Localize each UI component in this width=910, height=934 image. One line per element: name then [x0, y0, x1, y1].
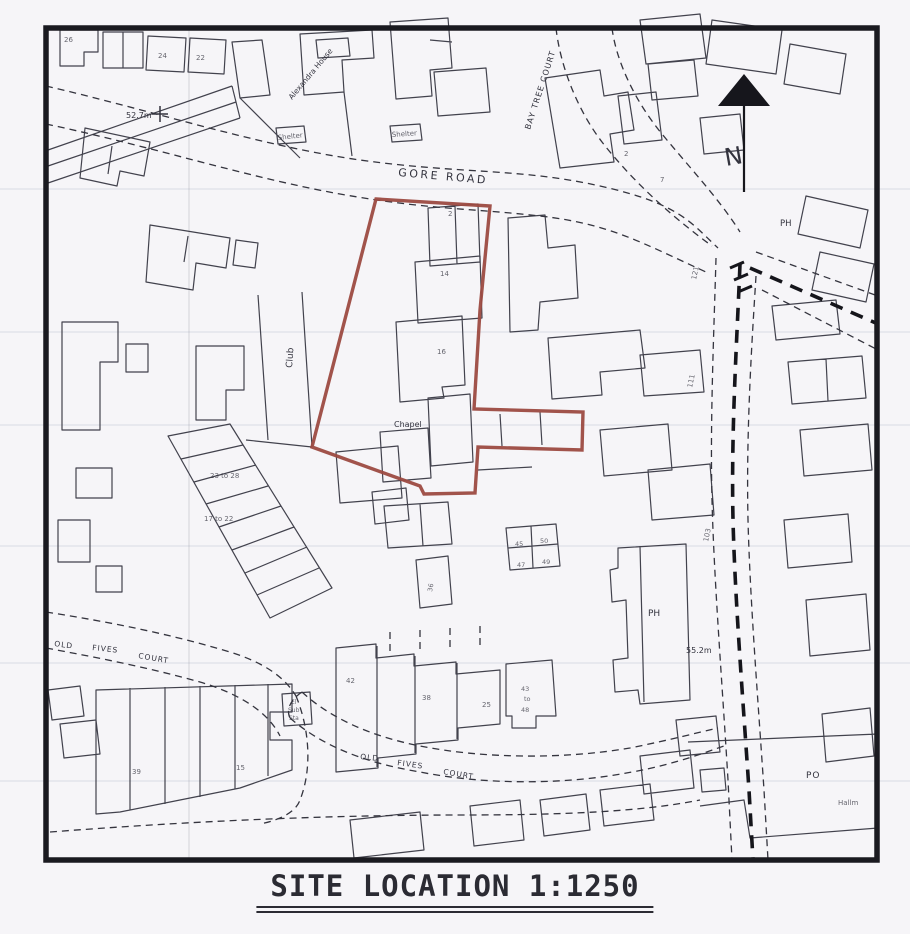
label-48: 48	[521, 706, 529, 714]
label-number-39: 39	[132, 768, 141, 776]
label-number-42: 42	[346, 677, 355, 685]
label-gore-road: GORE ROAD	[398, 166, 489, 187]
building-outline	[48, 684, 312, 814]
building-outline	[508, 215, 714, 704]
map-frame	[46, 28, 877, 860]
label-substation-sta: Sta	[289, 715, 299, 722]
label-po: PO	[806, 771, 821, 781]
label-number-36: 36	[426, 583, 435, 593]
label-benchmark-52: 52.7m	[126, 111, 152, 120]
label-oldfives-s-court: COURT	[443, 767, 475, 781]
building-outline	[58, 128, 312, 592]
label-shelter-east: Shelter	[392, 129, 418, 139]
label-benchmark-55: 55.2m	[686, 646, 712, 655]
label-number-111: 111	[686, 374, 697, 389]
label-oldfives-s-old: OLD	[360, 752, 380, 763]
label-garage-50: 50	[540, 537, 548, 545]
label-number-14: 14	[440, 270, 449, 278]
label-number-38: 38	[422, 694, 431, 702]
building-outline	[545, 14, 874, 302]
label-number-2-site: 2	[448, 210, 452, 218]
label-substation-el: El	[291, 699, 297, 706]
label-range-23-28: 23 to 28	[210, 472, 239, 480]
building-outline	[48, 18, 490, 183]
label-number-121: 121	[690, 266, 701, 281]
north-arrow-icon: N	[718, 74, 770, 192]
label-number-15: 15	[236, 764, 245, 772]
label-number-24: 24	[158, 52, 167, 60]
label-oldfives-w-old: OLD	[54, 639, 74, 651]
label-number-26: 26	[64, 36, 73, 44]
site-location-plan: N GORE ROAD BAY TREE COURT Alexandra Hou…	[0, 0, 910, 934]
label-garage-47: 47	[517, 561, 525, 569]
survey-cross-icon	[152, 106, 168, 122]
label-number-22: 22	[196, 54, 205, 62]
map-caption: SITE LOCATION 1:1250	[256, 869, 653, 913]
road-edges	[46, 28, 878, 860]
building-outline	[336, 204, 542, 524]
north-label: N	[722, 141, 745, 172]
label-shelter-west: Shelter	[277, 131, 303, 142]
label-garage-45: 45	[515, 540, 523, 548]
label-oldfives-w-fives: FIVES	[92, 643, 119, 655]
buildings-linework	[48, 14, 878, 858]
label-number-103: 103	[702, 528, 713, 543]
label-garage-49: 49	[542, 558, 550, 566]
label-chapel: Chapel	[394, 420, 422, 429]
label-number-7: 7	[660, 176, 664, 184]
building-outline	[350, 300, 878, 858]
label-range-17-22: 17 to 22	[204, 515, 233, 523]
label-hallmark: Hallm	[838, 799, 858, 807]
label-club: Club	[285, 347, 296, 368]
label-ph-south: PH	[648, 609, 660, 619]
label-number-25: 25	[482, 701, 491, 709]
label-number-16: 16	[437, 348, 446, 356]
label-substation-sub: Sub	[288, 707, 300, 714]
map-canvas: N GORE ROAD BAY TREE COURT Alexandra Hou…	[0, 0, 910, 934]
label-43: 43	[521, 685, 529, 693]
label-number-2-topright: 2	[624, 150, 628, 158]
terrace-outline	[168, 424, 332, 618]
site-boundary-outline	[312, 199, 583, 494]
label-to: to	[524, 695, 531, 703]
label-ph-north: PH	[780, 219, 792, 229]
